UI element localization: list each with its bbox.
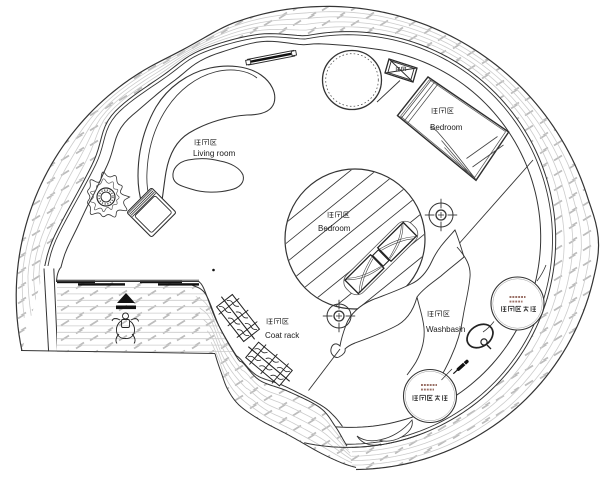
svg-text:Bedroom: Bedroom	[318, 224, 351, 233]
svg-text:Coat rack: Coat rack	[265, 331, 300, 340]
svg-text:Living room: Living room	[193, 149, 236, 158]
svg-text:Washbasin: Washbasin	[426, 325, 465, 334]
svg-text:Bedroom: Bedroom	[430, 123, 463, 132]
